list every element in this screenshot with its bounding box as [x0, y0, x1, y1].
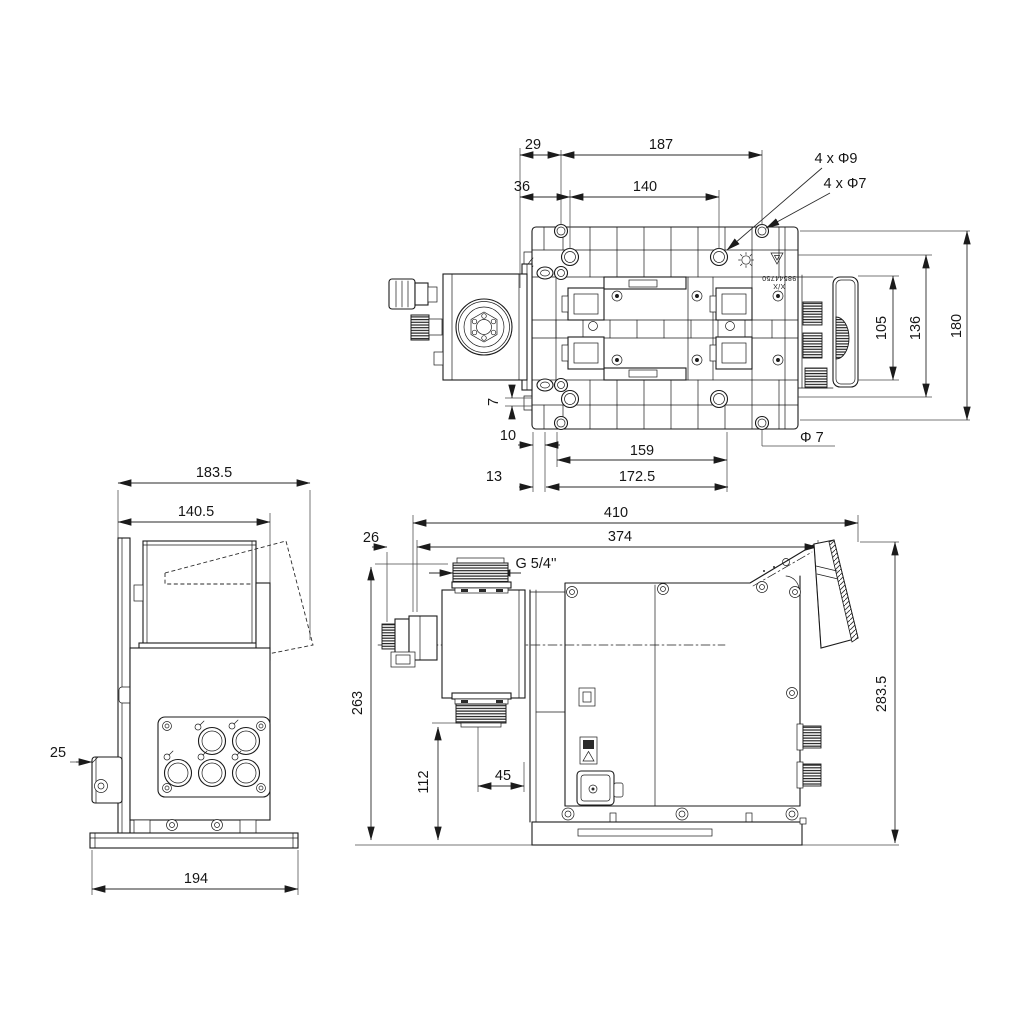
- housing-screws: [567, 582, 801, 699]
- side-knob-1: [803, 726, 821, 748]
- wall-hook: [92, 757, 122, 803]
- mounting-plate: X/X 98544750: [523, 225, 798, 430]
- suction-valve: [452, 693, 511, 727]
- dim-172-5: 172.5: [619, 469, 655, 485]
- base-plate-side: [90, 833, 298, 848]
- side-view-body: [90, 538, 313, 848]
- front-view: 410 374 26 G 5/4'' 263 112 45 283.5: [350, 505, 899, 845]
- technical-drawing: X/X 98544750: [0, 0, 1024, 1024]
- dim-183-5: 183.5: [196, 465, 232, 481]
- part-label-line2: 98544750: [762, 274, 796, 281]
- dim-140: 140: [633, 179, 657, 195]
- dim-10: 10: [500, 428, 516, 444]
- dosing-head-top: [389, 264, 532, 390]
- dim-105: 105: [874, 316, 890, 340]
- dim-13: 13: [486, 469, 502, 485]
- discharge-valve: [452, 558, 511, 593]
- grid-row-bottom: [544, 380, 779, 429]
- warning-sticker: [580, 737, 597, 764]
- callout-thread: G 5/4'': [515, 556, 556, 572]
- dim-45: 45: [495, 768, 511, 784]
- cable-gland-front: [382, 616, 437, 667]
- dim-194: 194: [184, 871, 208, 887]
- main-housing: [565, 544, 821, 806]
- gear-icon: [739, 253, 754, 268]
- dim-26: 26: [363, 530, 379, 546]
- callout-4xd9: 4 x Φ9: [814, 151, 857, 167]
- dim-36: 36: [514, 179, 530, 195]
- bottom-screws: [167, 820, 223, 831]
- knob-top-3: [805, 368, 827, 388]
- part-label-line1: X/X: [773, 282, 785, 289]
- left-side-view: 183.5 140.5 25 194: [50, 465, 313, 895]
- connector-plate: [158, 717, 270, 797]
- dim-112: 112: [416, 770, 432, 793]
- knob-top-2: [803, 333, 822, 358]
- dim-159: 159: [630, 443, 654, 459]
- front-view-body: [378, 540, 858, 845]
- grid-row-top: [544, 227, 779, 277]
- foot-screws: [562, 808, 798, 820]
- callout-d7: Φ 7: [800, 430, 824, 446]
- base-plate-front: [532, 813, 806, 845]
- callout-4xd7: 4 x Φ7: [823, 176, 866, 192]
- control-housing: [143, 541, 256, 648]
- dim-187: 187: [649, 137, 673, 153]
- dim-410: 410: [604, 505, 628, 521]
- dim-140-5: 140.5: [178, 504, 214, 520]
- dim-283-5: 283.5: [874, 676, 890, 712]
- part-label: X/X 98544750: [762, 274, 796, 289]
- dim-136: 136: [908, 316, 924, 340]
- knob-top-1: [803, 302, 822, 325]
- dosing-head-front: [442, 558, 525, 727]
- control-unit-top: [798, 275, 858, 388]
- cable-gland-top: [389, 279, 437, 309]
- vent-knob-top: [411, 315, 442, 340]
- dim-180: 180: [949, 314, 965, 338]
- warning-triangle-icon: [771, 253, 783, 264]
- dim-7: 7: [486, 398, 502, 406]
- dim-29: 29: [525, 137, 541, 153]
- display-panel: [814, 540, 858, 648]
- side-knob-2: [803, 764, 821, 786]
- plate-screws: [589, 291, 784, 365]
- top-view: X/X 98544750: [389, 137, 970, 492]
- dim-25: 25: [50, 745, 66, 761]
- nameplate: [577, 771, 623, 805]
- dim-263: 263: [350, 691, 366, 715]
- dim-374: 374: [608, 529, 632, 545]
